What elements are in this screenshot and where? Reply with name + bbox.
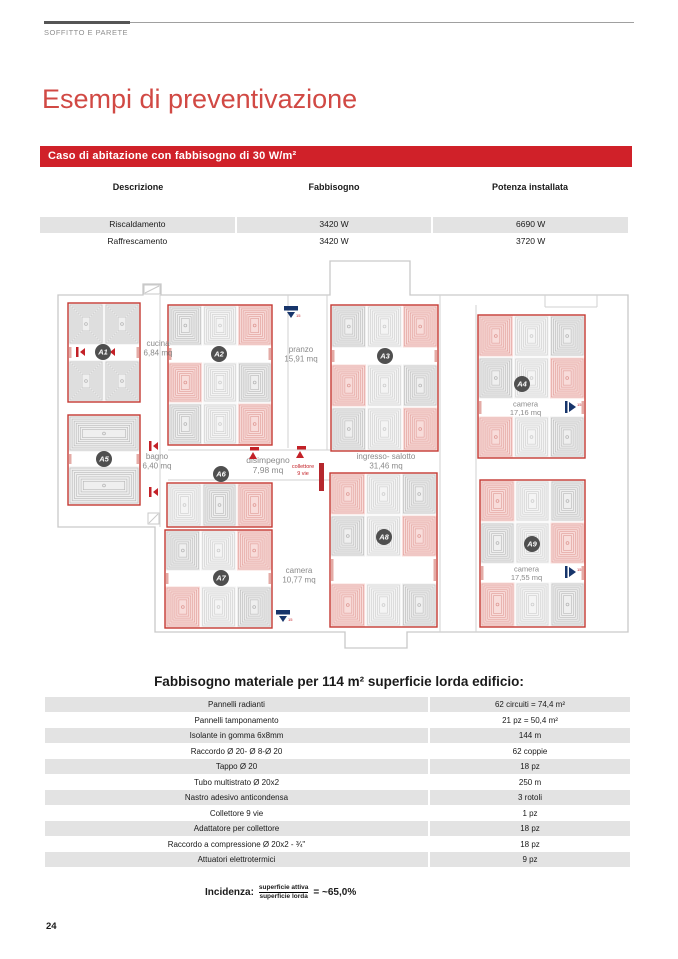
material-quantity: 9 pz (430, 852, 630, 867)
marker-triangle-icon (296, 446, 306, 458)
material-label: Nastro adesivo anticondensa (45, 790, 428, 805)
zone-badge-label: A8 (378, 533, 389, 542)
room-label: 17,55 mq (511, 573, 542, 582)
material-label: Tubo multistrato Ø 20x2 (45, 775, 428, 790)
svg-text:15,91 mq: 15,91 mq (284, 355, 317, 364)
svg-text:31,46 mq: 31,46 mq (369, 462, 402, 471)
material-quantity: 21 pz = 50,4 m² (430, 713, 630, 728)
material-quantity: 1 pz (430, 806, 630, 821)
room-label: pranzo15,91 mq (284, 345, 317, 364)
materials-row: Pannelli tamponamento21 pz = 50,4 m² (45, 713, 630, 728)
svg-text:bagno: bagno (146, 452, 169, 461)
zone-badge-label: A5 (98, 455, 109, 464)
material-label: Pannelli tamponamento (45, 713, 428, 728)
zone-A3: A3 (331, 305, 438, 451)
svg-text:6,40 mq: 6,40 mq (143, 462, 172, 471)
materials-row: Raccordo Ø 20- Ø 8-Ø 2062 coppie (45, 744, 630, 759)
zone-badge-label: A4 (516, 380, 527, 389)
svg-text:10,77 mq: 10,77 mq (282, 576, 315, 585)
room-label: cucina6,84 mq (144, 339, 173, 358)
svg-text:15: 15 (296, 313, 301, 318)
incidenza-result: = ~65,0% (313, 887, 356, 898)
zone-badge-label: A7 (215, 574, 226, 583)
zone-badge-label: A2 (213, 350, 224, 359)
material-quantity: 18 pz (430, 837, 630, 852)
svg-text:cucina: cucina (146, 339, 170, 348)
zone-A8: A8 (330, 473, 437, 627)
valve-icon (149, 441, 158, 451)
zone-A5: A5 (68, 415, 140, 505)
zone-badge-label: A9 (526, 540, 537, 549)
material-label: Raccordo a compressione Ø 20x2 - ¾" (45, 837, 428, 852)
materials-row: Attuatori elettrotermici9 pz (45, 852, 630, 867)
svg-text:pranzo: pranzo (289, 345, 314, 354)
room-label: collettore9 vie (292, 464, 314, 477)
incidenza-formula: Incidenza: superficie attiva superficie … (205, 884, 356, 901)
svg-text:ingresso- salotto: ingresso- salotto (357, 452, 416, 461)
room-label: bagno6,40 mq (143, 452, 172, 471)
page-number: 24 (46, 921, 57, 932)
materials-row: Pannelli radianti62 circuiti = 74,4 m² (45, 697, 630, 712)
incidenza-fraction: superficie attiva superficie lorda (259, 884, 309, 901)
zone-A2: A2 (168, 305, 272, 445)
materials-row: Isolante in gomma 6x8mm144 m (45, 728, 630, 743)
svg-text:15: 15 (288, 617, 293, 622)
materials-row: Tappo Ø 2018 pz (45, 759, 630, 774)
material-quantity: 18 pz (430, 821, 630, 836)
material-quantity: 3 rotoli (430, 790, 630, 805)
materials-table: Pannelli radianti62 circuiti = 74,4 m²Pa… (45, 697, 630, 868)
material-label: Pannelli radianti (45, 697, 428, 712)
materials-row: Raccordo a compressione Ø 20x2 - ¾"18 pz (45, 837, 630, 852)
zone-badge-label: A1 (97, 348, 108, 357)
incidenza-denominator: superficie lorda (259, 892, 307, 901)
material-quantity: 18 pz (430, 759, 630, 774)
materials-row: Collettore 9 vie1 pz (45, 806, 630, 821)
zone-A4: camera17,16 mq15A4 (478, 315, 585, 458)
svg-text:7,98 mq: 7,98 mq (253, 465, 284, 475)
zone-badge-label: A6 (215, 470, 226, 479)
material-label: Adattatore per collettore (45, 821, 428, 836)
collector-icon (319, 463, 324, 491)
room-label: 17,16 mq (510, 408, 541, 417)
material-label: Attuatori elettrotermici (45, 852, 428, 867)
materials-row: Nastro adesivo anticondensa3 rotoli (45, 790, 630, 805)
room-label: ingresso- salotto31,46 mq (357, 452, 416, 471)
zone-A6: A6 (167, 466, 272, 527)
material-label: Collettore 9 vie (45, 806, 428, 821)
material-quantity: 62 circuiti = 74,4 m² (430, 697, 630, 712)
svg-text:camera: camera (286, 566, 313, 575)
svg-text:6,84 mq: 6,84 mq (144, 349, 173, 358)
material-label: Raccordo Ø 20- Ø 8-Ø 20 (45, 744, 428, 759)
incidenza-numerator: superficie attiva (259, 884, 309, 892)
material-label: Tappo Ø 20 (45, 759, 428, 774)
incidenza-label: Incidenza: (205, 887, 254, 898)
svg-text:15: 15 (577, 567, 582, 572)
zone-A7: A7 (165, 530, 272, 628)
material-quantity: 144 m (430, 728, 630, 743)
svg-text:15: 15 (577, 402, 582, 407)
probe-icon: 15 (276, 610, 293, 622)
room-label: camera10,77 mq (282, 566, 315, 585)
svg-text:collettore: collettore (292, 464, 314, 470)
materials-row: Adattatore per collettore18 pz (45, 821, 630, 836)
svg-text:9 vie: 9 vie (297, 471, 309, 477)
page: SOFFITTO E PARETE Esempi di preventivazi… (0, 0, 678, 959)
material-label: Isolante in gomma 6x8mm (45, 728, 428, 743)
material-quantity: 62 coppie (430, 744, 630, 759)
zone-A9: camera17,55 mq15A9 (480, 480, 585, 627)
probe-icon: 15 (284, 306, 301, 318)
material-quantity: 250 m (430, 775, 630, 790)
materials-title: Fabbisogno materiale per 114 m² superfic… (0, 674, 678, 689)
zone-badge-label: A3 (379, 352, 390, 361)
valve-icon (149, 487, 158, 497)
zone-A1: A1 (68, 303, 140, 402)
materials-row: Tubo multistrato Ø 20x2250 m (45, 775, 630, 790)
